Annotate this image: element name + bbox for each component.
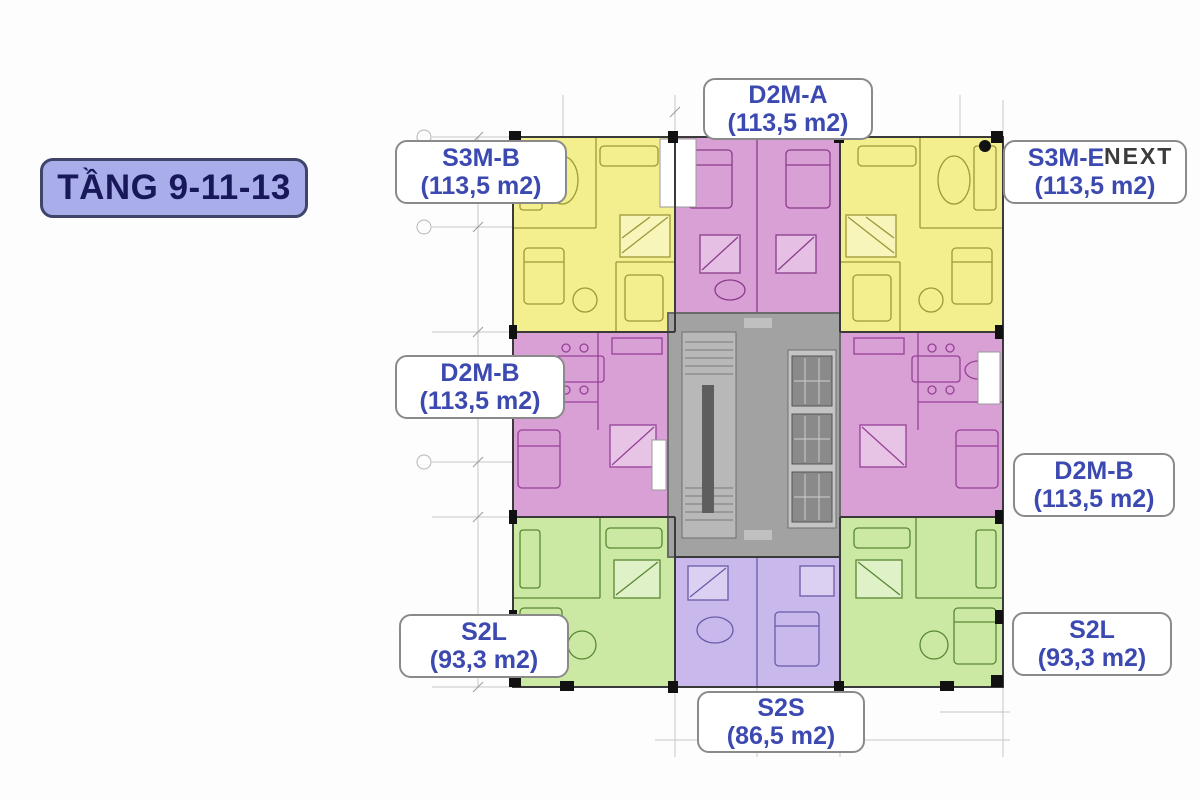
unit-label-d2m-b-left: D2M-B (113,5 m2) xyxy=(395,355,565,419)
grid-point-dot xyxy=(979,140,991,152)
unit-name: S3M-E xyxy=(1028,144,1104,173)
unit-label-s2s: S2S (86,5 m2) xyxy=(697,691,865,753)
next-watermark: NEXT xyxy=(1104,143,1173,170)
unit-name: D2M-B xyxy=(440,359,519,388)
unit-label-s2l-left: S2L (93,3 m2) xyxy=(399,614,569,678)
unit-label-d2m-a: D2M-A (113,5 m2) xyxy=(703,78,873,140)
floor-plan-page: TẦNG 9-11-13 D2M-A (113,5 m2) S3M-B (113… xyxy=(0,0,1200,800)
unit-name: S2L xyxy=(461,618,507,647)
unit-area: (93,3 m2) xyxy=(430,646,538,675)
unit-label-d2m-b-right: D2M-B (113,5 m2) xyxy=(1013,453,1175,517)
unit-name: S2L xyxy=(1069,616,1115,645)
unit-region-s2l-right xyxy=(840,517,1003,687)
unit-name: S3M-B xyxy=(442,144,520,173)
unit-name: D2M-A xyxy=(748,81,827,110)
unit-label-s2l-right: S2L (93,3 m2) xyxy=(1012,612,1172,676)
floor-plan-drawing xyxy=(0,0,1200,800)
unit-area: (113,5 m2) xyxy=(421,172,542,201)
elevator-icons xyxy=(792,356,832,522)
unit-area: (113,5 m2) xyxy=(420,387,541,416)
unit-area: (93,3 m2) xyxy=(1038,644,1146,673)
unit-area: (113,5 m2) xyxy=(1034,485,1155,514)
core-region xyxy=(668,313,840,557)
unit-area: (113,5 m2) xyxy=(1035,172,1156,201)
unit-area: (86,5 m2) xyxy=(727,722,835,751)
unit-name: D2M-B xyxy=(1054,457,1133,486)
unit-label-s3m-b: S3M-B (113,5 m2) xyxy=(395,140,567,204)
unit-name: S2S xyxy=(757,694,804,723)
unit-area: (113,5 m2) xyxy=(728,109,849,138)
floor-title-badge: TẦNG 9-11-13 xyxy=(40,158,308,218)
